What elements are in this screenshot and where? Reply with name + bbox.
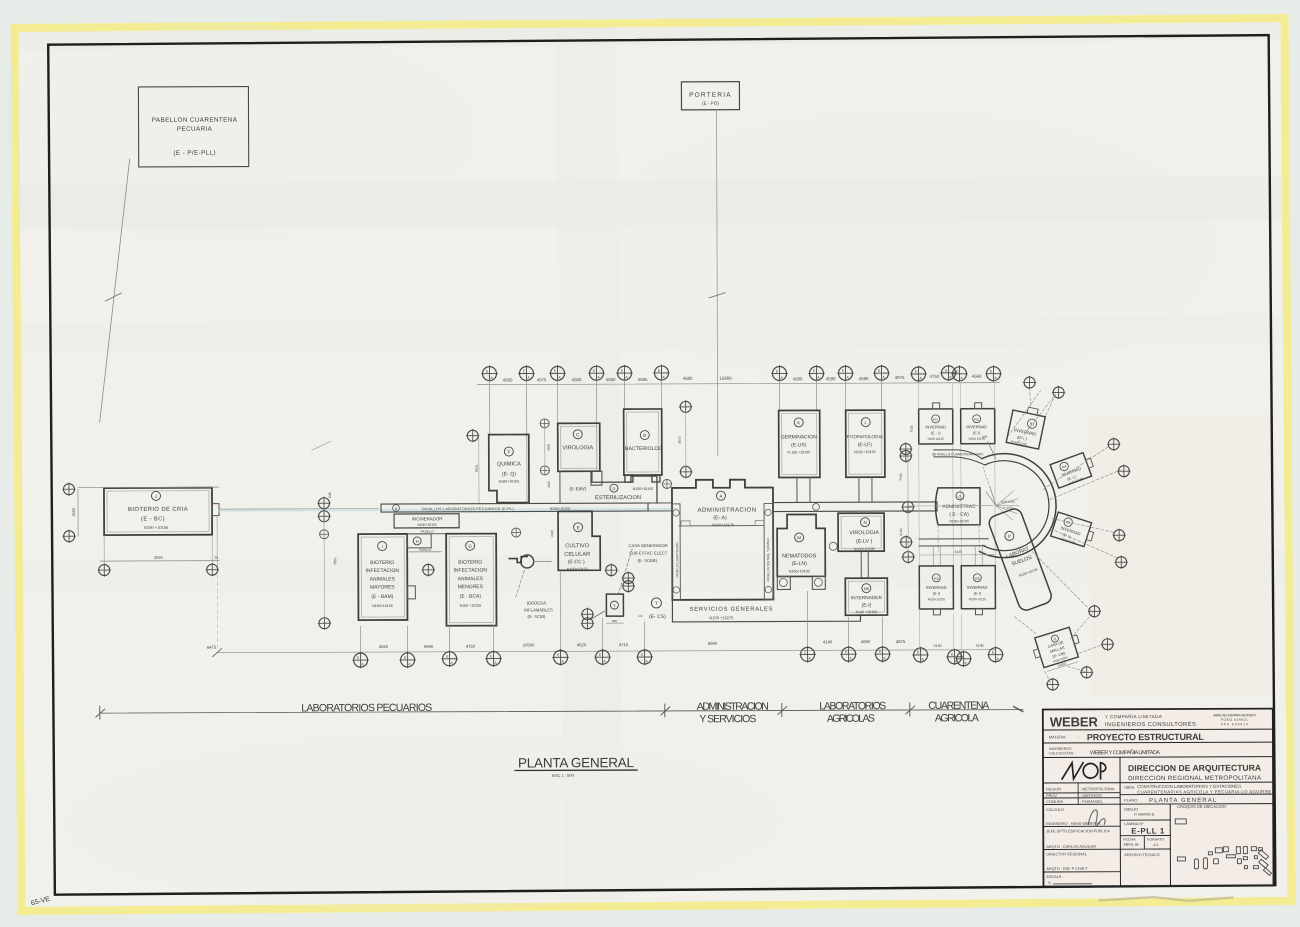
svg-text:PASILLO: PASILLO	[419, 548, 432, 552]
svg-text:A-1: A-1	[1153, 843, 1159, 847]
svg-text:T: T	[655, 601, 658, 606]
svg-text:: PUDAHUEL: : PUDAHUEL	[1080, 800, 1103, 804]
svg-text:4560: 4560	[972, 374, 982, 379]
svg-text:E: E	[577, 525, 580, 530]
svg-text:N100 +10155: N100 +10155	[144, 525, 169, 530]
svg-text:PLANO :: PLANO :	[1124, 799, 1139, 803]
svg-text:4590: 4590	[859, 376, 869, 381]
svg-text:LABORATORIOS PECUARIOS: LABORATORIOS PECUARIOS	[301, 702, 432, 715]
svg-text:1545: 1545	[547, 481, 551, 488]
svg-text:REGION: REGION	[1046, 787, 1061, 791]
svg-text:R3: R3	[934, 577, 939, 581]
svg-text:0: 0	[1048, 881, 1050, 885]
svg-text:CALCULISTAS :: CALCULISTAS :	[1049, 751, 1075, 755]
svg-text:GERMINACION: GERMINACION	[781, 434, 817, 440]
svg-text:CASA GENERADOR: CASA GENERADOR	[629, 543, 668, 548]
svg-text:4520: 4520	[379, 644, 389, 649]
svg-text:(E-US): (E-US)	[791, 442, 807, 448]
svg-text:4590: 4590	[793, 376, 803, 381]
svg-text:FITOPATOLOGIA: FITOPATOLOGIA	[847, 434, 884, 439]
svg-text:(E - BCA): (E - BCA)	[460, 594, 482, 600]
svg-text:6840: 6840	[708, 641, 718, 646]
svg-text:(BODEGA: (BODEGA	[527, 600, 547, 605]
svg-text:(E-I): (E-I)	[933, 592, 941, 596]
svg-text:(E-LF): (E-LF)	[858, 442, 873, 448]
svg-text:E-PLL 1: E-PLL 1	[1131, 827, 1165, 836]
svg-text:DIRECCION REGIONAL METROPOL: DIRECCION REGIONAL METROPOLITANA	[1128, 775, 1262, 783]
svg-text:: SANTIAGO: : SANTIAGO	[1080, 794, 1102, 798]
svg-text:BACTERIOLOG: BACTERIOLOG	[625, 446, 663, 452]
svg-text:WEBER Y COMPAÑIA LIMITADA: WEBER Y COMPAÑIA LIMITADA	[1090, 749, 1160, 756]
svg-text:K: K	[797, 420, 800, 425]
svg-text:7950: 7950	[333, 557, 337, 565]
svg-text:CUARENTENA: CUARENTENA	[928, 700, 989, 712]
svg-text:PASILLO: PASILLO	[421, 530, 435, 534]
svg-text:DIBUJO: DIBUJO	[1124, 808, 1138, 812]
svg-text:ADMINISTRAC: ADMINISTRAC	[942, 504, 976, 510]
svg-text:R1: R1	[933, 418, 938, 422]
svg-text:4140: 4140	[823, 639, 833, 644]
svg-text:4520: 4520	[577, 642, 587, 647]
svg-text:(E- Q): (E- Q)	[502, 472, 516, 478]
svg-text:G: G	[468, 544, 472, 549]
svg-text:(B) PASILLO CUARENTENA AGRIC: (B) PASILLO CUARENTENA AGRIC	[932, 452, 984, 456]
svg-text:ARCHIVO TECNICO: ARCHIVO TECNICO	[1124, 853, 1159, 857]
svg-text:CALCULO: CALCULO	[1046, 808, 1064, 812]
svg-text:N100 10195: N100 10195	[928, 437, 945, 441]
svg-text:4140: 4140	[955, 550, 962, 554]
svg-text:FORMATO: FORMATO	[1147, 838, 1164, 842]
svg-text:VIROLOGIA: VIROLOGIA	[849, 530, 879, 536]
svg-text:INGENIEROS: INGENIEROS	[1049, 747, 1072, 751]
svg-text:4750: 4750	[466, 644, 476, 649]
svg-text:N100+10205: N100+10205	[928, 597, 946, 601]
svg-text:7605: 7605	[475, 465, 479, 473]
svg-text:4875: 4875	[896, 639, 906, 644]
svg-text:N100+10195: N100+10195	[854, 547, 875, 551]
svg-text:INFECTACION: INFECTACION	[365, 568, 399, 574]
svg-text:7040: 7040	[899, 473, 903, 481]
svg-text:JAIME DE LA BARRA GEOFISICA: JAIME DE LA BARRA GEOFISICA	[1213, 713, 1257, 717]
svg-text:PASILLO CLIMATIZADO: PASILLO CLIMATIZADO	[675, 542, 679, 578]
svg-text:4140: 4140	[976, 644, 984, 648]
svg-text:SUB-ESTAC ELECT: SUB-ESTAC ELECT	[629, 550, 668, 555]
svg-text:B: B	[643, 433, 646, 438]
svg-text:25: 25	[214, 556, 218, 560]
svg-text:4565: 4565	[638, 377, 648, 382]
svg-text:N100+10155: N100+10155	[567, 567, 588, 571]
svg-text:4500: 4500	[572, 377, 582, 382]
svg-text:PROYECTO ESTRUCTURAL: PROYECTO ESTRUCTURAL	[1087, 732, 1205, 742]
svg-text:INFLAMABLES: INFLAMABLES	[524, 607, 553, 612]
svg-text:4140: 4140	[899, 528, 903, 536]
svg-text:PROV: PROV	[1046, 794, 1057, 798]
svg-text:ABRIL 96: ABRIL 96	[1123, 843, 1138, 847]
svg-text:N8: N8	[864, 586, 870, 591]
svg-text:G: G	[958, 494, 961, 499]
svg-text:DIRECTOR REGIONAL: DIRECTOR REGIONAL	[1046, 852, 1086, 856]
svg-text:N 100 +10195: N 100 +10195	[787, 450, 810, 454]
svg-text:(E-I): (E-I)	[974, 592, 982, 596]
svg-text:CUARENTENARIAS AGRICOLA Y P: CUARENTENARIAS AGRICOLA Y PECUARIA-LO AG…	[1137, 789, 1271, 795]
svg-text:15600: 15600	[719, 376, 732, 381]
svg-text:445: 445	[982, 435, 988, 439]
svg-text:(E - I): (E - I)	[931, 431, 941, 435]
svg-text:N100+10155: N100+10155	[550, 507, 571, 511]
svg-text:P. MARIN S.: P. MARIN S.	[1134, 813, 1155, 817]
svg-text:FAX 639924: FAX 639924	[1221, 722, 1248, 726]
svg-text:4560: 4560	[683, 376, 693, 381]
svg-text:ESC 1 : 500: ESC 1 : 500	[552, 773, 574, 778]
svg-text:MENORES: MENORES	[458, 584, 484, 590]
svg-text:PECUARIA: PECUARIA	[177, 126, 213, 133]
svg-text:( E - CA): ( E - CA)	[949, 512, 969, 518]
svg-text:4590: 4590	[826, 376, 836, 381]
svg-text:N100+10155: N100+10155	[372, 604, 393, 608]
svg-text:N100 +10155: N100 +10155	[460, 604, 482, 608]
svg-text:ANIMALES: ANIMALES	[370, 576, 396, 582]
svg-text:4715: 4715	[619, 642, 629, 647]
svg-text:DIRECCION DE ARQUITECTURA: DIRECCION DE ARQUITECTURA	[1128, 763, 1261, 774]
svg-text:ESTERILIZACION: ESTERILIZACION	[595, 495, 641, 501]
svg-text:MATERIA: MATERIA	[1049, 735, 1066, 739]
svg-text:AGRICOLA: AGRICOLA	[935, 712, 979, 724]
svg-text:(E - P/E-PLL): (E - P/E-PLL)	[173, 150, 216, 157]
svg-text:MAYORES: MAYORES	[370, 584, 395, 590]
svg-text:INVERNAD: INVERNAD	[966, 424, 987, 429]
svg-text:(E-LV ): (E-LV )	[856, 539, 872, 545]
svg-text:QUIMICA: QUIMICA	[497, 461, 521, 467]
svg-text:ADMINISTRACION: ADMINISTRACION	[697, 701, 769, 713]
svg-text:(E-I): (E-I)	[862, 603, 872, 609]
svg-text:INVERNAD: INVERNAD	[925, 424, 946, 429]
svg-text:ARQTO : RAF P CHIN T.: ARQTO : RAF P CHIN T.	[1046, 867, 1088, 871]
svg-text:(E-I): (E-I)	[973, 431, 981, 435]
svg-text:ESCALA: ESCALA	[1046, 875, 1061, 879]
svg-text:COMUNA: COMUNA	[1046, 800, 1063, 804]
svg-text:R4: R4	[975, 577, 980, 581]
svg-text:(E - BC): (E - BC)	[141, 516, 165, 522]
svg-text:I: I	[382, 544, 383, 549]
svg-text:PASILLOS LABORATORIOS PECUARIO: PASILLOS LABORATORIOS PECUARIOS (E-PL)	[422, 507, 514, 511]
svg-text:(E-CC ): (E-CC )	[568, 559, 585, 565]
svg-text:LABORATORIOS: LABORATORIOS	[819, 700, 886, 712]
svg-text:N100+10195: N100+10195	[789, 569, 810, 573]
svg-text:JEFE DPTO.EDIFICACION PUBLICA: JEFE DPTO.EDIFICACION PUBLICA	[1046, 829, 1110, 833]
svg-text:R2: R2	[974, 418, 979, 422]
svg-text:N100+10175: N100+10175	[712, 523, 734, 527]
svg-text:4500: 4500	[547, 444, 551, 451]
svg-text:4875: 4875	[895, 375, 905, 380]
svg-text:2445: 2445	[550, 530, 554, 537]
svg-text:N100 +10275: N100 +10275	[709, 615, 734, 620]
svg-text:(E- CS): (E- CS)	[649, 614, 666, 620]
svg-text:N100 +10195: N100 +10195	[854, 450, 876, 454]
svg-text:PLANTA GENERAL: PLANTA GENERAL	[518, 755, 635, 770]
svg-text:(E-LN): (E-LN)	[792, 561, 808, 567]
svg-text:N100+10210: N100+10210	[969, 597, 987, 601]
svg-text:4560: 4560	[606, 377, 616, 382]
svg-text:AGRICOLAS: AGRICOLAS	[827, 713, 875, 725]
svg-text:NEMATODOS: NEMATODOS	[782, 553, 817, 559]
svg-text:BIOTERIO: BIOTERIO	[370, 560, 394, 566]
svg-text:(E - BAM): (E - BAM)	[371, 594, 393, 600]
svg-text:4940: 4940	[424, 644, 434, 649]
svg-text:(E- SCBI): (E- SCBI)	[527, 614, 546, 619]
svg-text:N100+10155: N100+10155	[499, 480, 520, 484]
svg-text:4560: 4560	[503, 378, 513, 383]
svg-text:ADMINISTRACION: ADMINISTRACION	[698, 508, 757, 514]
svg-text:A: A	[719, 494, 722, 499]
svg-text:PORTERIA: PORTERIA	[689, 92, 732, 99]
svg-text:(E- SCEB): (E- SCEB)	[637, 558, 657, 563]
svg-text:PASILLO CENTRAL TERMICA: PASILLO CENTRAL TERMICA	[766, 537, 770, 582]
svg-text:INTERNADER: INTERNADER	[851, 595, 883, 601]
svg-text:N100 +10195: N100 +10195	[856, 610, 878, 614]
svg-text:500: 500	[612, 619, 617, 623]
svg-text:7040: 7040	[910, 425, 914, 433]
svg-text:M: M	[797, 535, 801, 540]
svg-text:4140: 4140	[934, 644, 942, 648]
svg-text:VIROLOGIA: VIROLOGIA	[562, 445, 593, 451]
svg-text:N100+10155: N100+10155	[417, 523, 437, 527]
svg-text:4520: 4520	[154, 555, 164, 560]
svg-text:J: J	[155, 494, 157, 499]
svg-text:Y: Y	[613, 603, 616, 608]
svg-text:N100 10195: N100 10195	[1001, 500, 1016, 504]
svg-text:FONO 639931: FONO 639931	[1221, 718, 1248, 722]
svg-text:BIOTERIO: BIOTERIO	[458, 560, 482, 566]
svg-text:Y SERVICIOS: Y SERVICIOS	[699, 713, 756, 725]
svg-text::: :	[1078, 734, 1079, 739]
svg-text:N100+10195: N100+10195	[949, 519, 969, 523]
svg-text:SERVICIOS GENERALES: SERVICIOS GENERALES	[690, 607, 774, 613]
svg-text:OBRA: OBRA	[1124, 786, 1135, 790]
svg-text:Y COMPAÑIA LIMITADA: Y COMPAÑIA LIMITADA	[1105, 713, 1163, 719]
svg-text:4560: 4560	[72, 508, 76, 516]
svg-text:N100+10155: N100+10155	[633, 487, 654, 491]
svg-text:INGENIEROS CONSULTORES: INGENIEROS CONSULTORES	[1105, 722, 1196, 728]
svg-text:4750: 4750	[930, 374, 940, 379]
svg-text:D: D	[613, 486, 616, 491]
svg-text:ANIMALES: ANIMALES	[458, 576, 484, 582]
svg-text:INCINERADOR: INCINERADOR	[412, 516, 443, 521]
svg-text:INVERNAD: INVERNAD	[926, 585, 947, 590]
svg-text:CELULAR: CELULAR	[564, 552, 590, 558]
svg-text:6475: 6475	[207, 645, 217, 650]
svg-text:INGENIERO : HANS WEBER M.: INGENIERO : HANS WEBER M.	[1046, 822, 1101, 826]
svg-text:F: F	[507, 450, 510, 455]
svg-text:4075: 4075	[537, 377, 547, 382]
svg-text:4500: 4500	[678, 436, 682, 444]
svg-text:10500: 10500	[523, 642, 535, 647]
svg-text:ARQTO : CARLOS AGUILAR: ARQTO : CARLOS AGUILAR	[1046, 845, 1096, 849]
svg-text:(E- A): (E- A)	[713, 515, 727, 521]
svg-text:PABELLON CUARENTENA: PABELLON CUARENTENA	[152, 117, 238, 124]
svg-text:WEBER: WEBER	[1050, 714, 1099, 729]
svg-text:N: N	[863, 520, 866, 525]
svg-text:(E-EBV): (E-EBV)	[570, 486, 587, 491]
svg-text:CROQUIS DE UBICACION: CROQUIS DE UBICACION	[1177, 804, 1226, 809]
svg-text:(E - PO): (E - PO)	[702, 101, 719, 106]
svg-text:CULTIVO: CULTIVO	[565, 543, 589, 549]
svg-text:: METROPOLITANA: : METROPOLITANA	[1080, 787, 1115, 791]
svg-text:4890: 4890	[861, 639, 871, 644]
svg-text:BIOTERIO DE CRIA: BIOTERIO DE CRIA	[128, 507, 188, 513]
svg-text:FECHA: FECHA	[1123, 838, 1136, 842]
svg-text:645: 645	[328, 492, 332, 498]
svg-text:LAMINA Nº: LAMINA Nº	[1124, 822, 1144, 826]
svg-text:H: H	[416, 539, 419, 544]
svg-text:INFECTACION: INFECTACION	[453, 568, 487, 574]
svg-text:INVERNAD: INVERNAD	[967, 585, 988, 590]
